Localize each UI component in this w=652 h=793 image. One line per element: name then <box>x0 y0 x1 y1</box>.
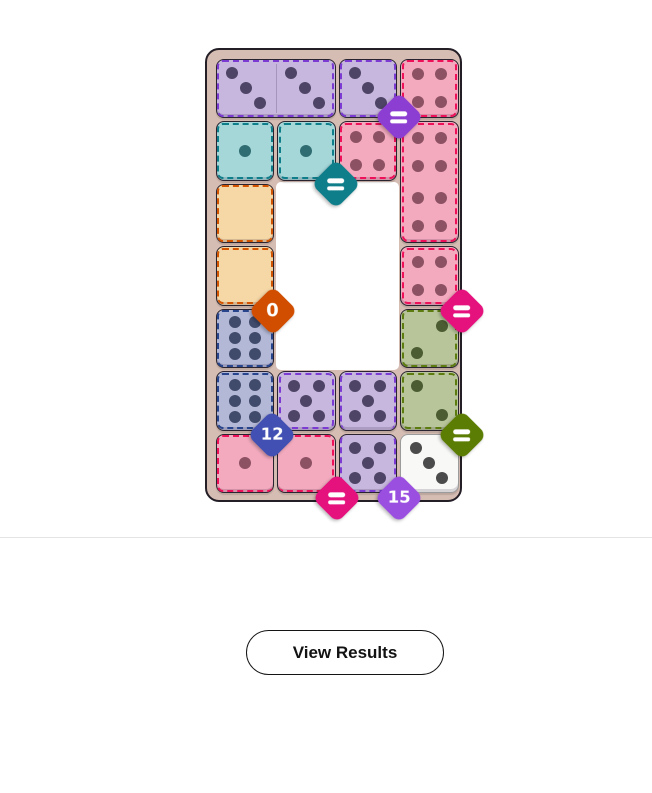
equals-glyph <box>390 111 407 123</box>
pip <box>249 379 261 391</box>
pip <box>254 97 266 109</box>
equals-glyph <box>454 305 471 317</box>
pip-faces <box>340 372 397 430</box>
pip <box>435 220 447 232</box>
section-divider <box>0 537 652 538</box>
die-face <box>217 60 276 118</box>
pip <box>249 348 261 360</box>
page: 01215 View Results <box>0 0 652 793</box>
half-1-r1c0[interactable] <box>216 121 275 181</box>
pip <box>313 97 325 109</box>
pip <box>285 67 297 79</box>
pip <box>374 442 386 454</box>
pip <box>412 256 424 268</box>
pip <box>412 220 424 232</box>
equals-bar <box>329 492 346 497</box>
pip <box>436 320 448 332</box>
pip <box>239 457 251 469</box>
pip <box>249 411 261 423</box>
equals-bar <box>328 186 345 191</box>
pip-faces <box>401 122 458 242</box>
sum-label: 15 <box>387 489 410 506</box>
pip <box>412 68 424 80</box>
pip <box>249 332 261 344</box>
pip <box>349 410 361 422</box>
pip <box>436 472 448 484</box>
pip <box>350 131 362 143</box>
domino-4-4-r1c3[interactable] <box>400 121 459 243</box>
pip <box>229 316 241 328</box>
pip <box>350 159 362 171</box>
pip <box>239 145 251 157</box>
pip <box>435 132 447 144</box>
pip <box>435 96 447 108</box>
pip <box>229 332 241 344</box>
pip <box>249 395 261 407</box>
equals-bar <box>390 118 407 123</box>
die-face <box>401 372 458 430</box>
die-face <box>278 372 335 430</box>
pip <box>374 472 386 484</box>
pip-faces <box>401 247 458 305</box>
pip <box>229 348 241 360</box>
pip <box>412 132 424 144</box>
pip <box>435 160 447 172</box>
pip <box>362 395 374 407</box>
die-face <box>217 122 274 180</box>
pip <box>411 380 423 392</box>
pip <box>349 67 361 79</box>
pip-faces <box>401 372 458 430</box>
pip <box>362 82 374 94</box>
pip <box>229 411 241 423</box>
equals-glyph <box>329 492 346 504</box>
half-5-r5c1[interactable] <box>277 371 336 431</box>
equals-bar <box>329 499 346 504</box>
die-face <box>340 372 397 430</box>
board-hole <box>276 182 399 370</box>
pip <box>436 409 448 421</box>
half-0-r2c0[interactable] <box>216 184 275 244</box>
equals-glyph <box>328 178 345 190</box>
equals-bar <box>454 305 471 310</box>
pip <box>349 472 361 484</box>
pip <box>313 410 325 422</box>
pip-faces <box>217 185 274 243</box>
equals-glyph <box>454 429 471 441</box>
pip <box>435 256 447 268</box>
puzzle-board: 01215 <box>205 48 462 502</box>
pip <box>411 347 423 359</box>
pip <box>229 379 241 391</box>
pip <box>374 380 386 392</box>
pip <box>300 145 312 157</box>
die-face <box>276 60 335 118</box>
equals-bar <box>454 313 471 318</box>
equals-bar <box>390 111 407 116</box>
half-5-r5c2[interactable] <box>339 371 398 431</box>
pip <box>410 442 422 454</box>
pip <box>412 192 424 204</box>
sum-label: 12 <box>260 427 283 444</box>
die-face <box>217 185 274 243</box>
pip <box>435 284 447 296</box>
equals-bar <box>454 437 471 442</box>
pip <box>240 82 252 94</box>
pip <box>229 395 241 407</box>
pip <box>435 68 447 80</box>
pip-faces <box>278 372 335 430</box>
die-face <box>401 247 458 305</box>
pip <box>300 395 312 407</box>
equals-bar <box>328 178 345 183</box>
die-face <box>401 182 458 242</box>
pip <box>288 380 300 392</box>
pip <box>373 131 385 143</box>
view-results-button[interactable]: View Results <box>246 630 444 675</box>
domino-3-3-r0c0[interactable] <box>216 59 336 119</box>
pip <box>423 457 435 469</box>
pip <box>288 410 300 422</box>
pip <box>349 380 361 392</box>
pip <box>412 160 424 172</box>
pip <box>373 159 385 171</box>
pip <box>300 457 312 469</box>
pip <box>412 284 424 296</box>
equals-bar <box>454 429 471 434</box>
domino-seam <box>276 64 278 114</box>
pip <box>299 82 311 94</box>
pip <box>435 192 447 204</box>
pip <box>313 380 325 392</box>
pip <box>374 410 386 422</box>
pip <box>226 67 238 79</box>
sum-label: 0 <box>266 302 279 320</box>
pip <box>349 442 361 454</box>
pip-faces <box>217 122 274 180</box>
pip <box>362 457 374 469</box>
